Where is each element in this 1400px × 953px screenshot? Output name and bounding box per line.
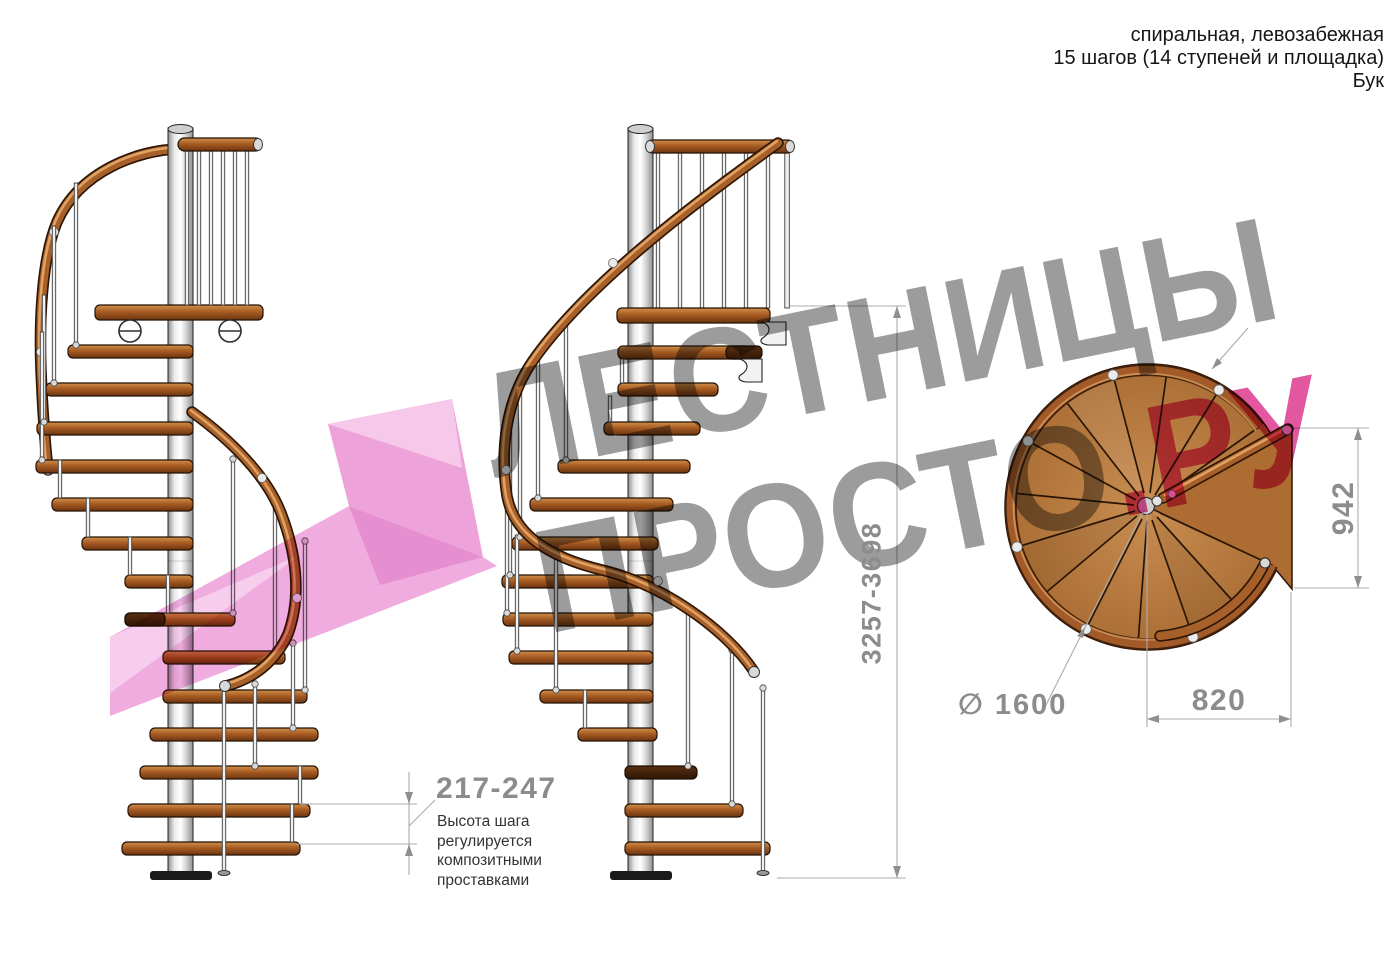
title-steps: 15 шагов (14 ступеней и площадка) [1053, 47, 1384, 70]
logo-arrow-watermark [0, 0, 1400, 953]
title-type: спиральная, левозабежная [1053, 24, 1384, 47]
dimension-total-height: 3257-3698 [857, 522, 888, 665]
technical-drawing-canvas: ЛЕСТНИЦЫ ПРОСТО.РУ спиральная, левозабеж… [0, 0, 1400, 953]
dimension-platform-width: 942 [1327, 481, 1361, 536]
dimension-diameter: ∅ 1600 [958, 687, 1067, 722]
title-material: Бук [1053, 70, 1384, 93]
dimension-platform-depth: 820 [1192, 684, 1247, 718]
step-height-note: Высота шага регулируется композитными пр… [437, 812, 542, 890]
dimension-step-height: 217-247 [436, 772, 557, 806]
title-block: спиральная, левозабежная 15 шагов (14 ст… [1053, 24, 1384, 93]
